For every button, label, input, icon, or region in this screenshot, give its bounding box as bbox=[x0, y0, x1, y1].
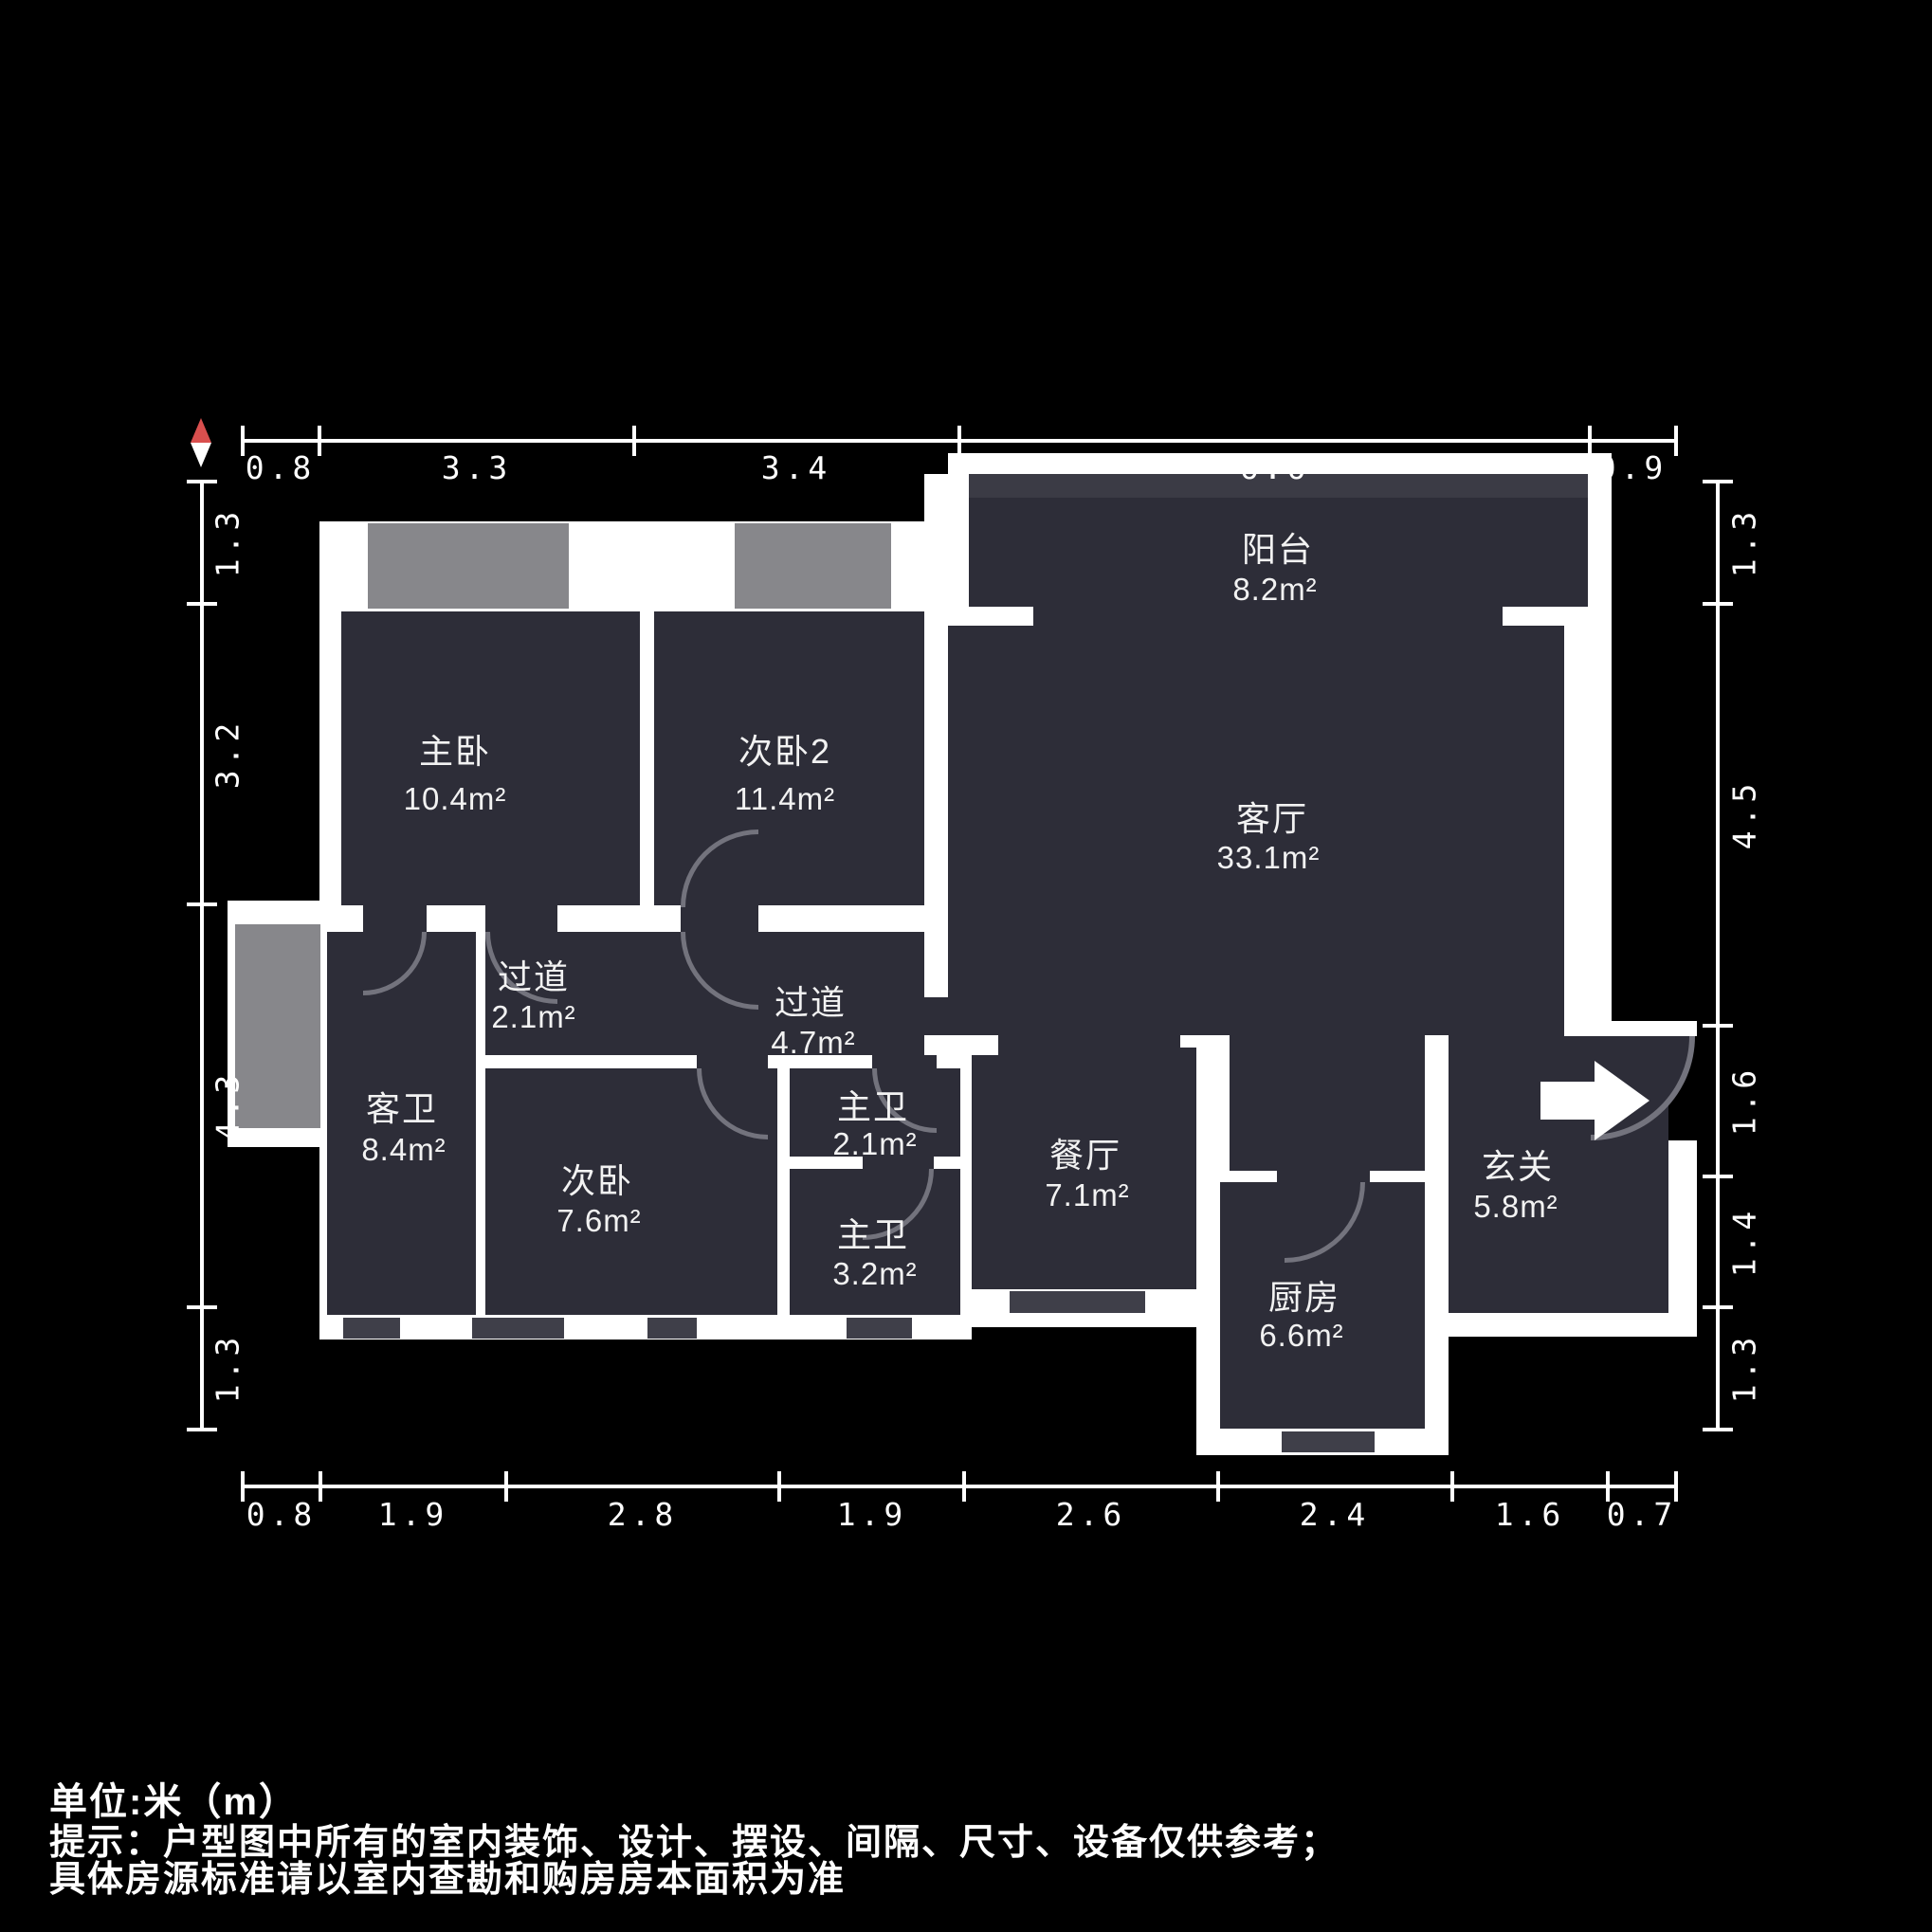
ruler-tick bbox=[962, 1471, 966, 1502]
ruler-tick bbox=[318, 426, 321, 456]
room-area-label: 33.1m² bbox=[1217, 840, 1321, 876]
room-label: 过道 bbox=[498, 950, 570, 999]
ruler-label: 1.3 bbox=[210, 1333, 246, 1404]
footer-disclaimer-line2: 具体房源标准请以室内查勘和购房房本面积为准 bbox=[49, 1850, 846, 1902]
ruler-tick bbox=[1674, 426, 1678, 456]
ruler-tick bbox=[1588, 426, 1592, 456]
ruler-label: 2.4 bbox=[1300, 1496, 1371, 1533]
ruler-tick bbox=[187, 602, 217, 606]
room-label: 厨房 bbox=[1268, 1270, 1340, 1320]
room-area-label: 11.4m² bbox=[735, 781, 835, 817]
window bbox=[235, 924, 320, 1128]
room-area-label: 8.4m² bbox=[361, 1132, 446, 1168]
wall bbox=[924, 905, 948, 997]
ruler-tick bbox=[319, 1471, 322, 1502]
ruler-tick bbox=[241, 426, 245, 456]
room-area-label: 7.6m² bbox=[556, 1203, 641, 1239]
ruler-tick bbox=[187, 1305, 217, 1309]
ruler-tick bbox=[187, 1428, 217, 1431]
ruler-tick bbox=[187, 480, 217, 483]
ruler-line bbox=[1716, 482, 1720, 1430]
ruler-line bbox=[243, 1485, 1676, 1488]
room-label: 次卧 bbox=[561, 1154, 633, 1203]
window-sill bbox=[847, 1318, 912, 1339]
ruler-line bbox=[200, 482, 204, 1430]
ruler-label: 3.3 bbox=[442, 449, 513, 486]
room-area-label: 4.7m² bbox=[771, 1025, 855, 1061]
ruler-tick bbox=[632, 426, 636, 456]
ruler-label: 1.3 bbox=[210, 507, 246, 578]
ruler-tick bbox=[187, 902, 217, 906]
ruler-label: 0.8 bbox=[246, 449, 317, 486]
ruler-tick bbox=[1703, 1305, 1733, 1309]
room-area-label: 8.2m² bbox=[1232, 572, 1317, 608]
window bbox=[368, 523, 569, 609]
room-area-label: 5.8m² bbox=[1473, 1189, 1558, 1225]
ruler-tick bbox=[1703, 480, 1733, 483]
ruler-tick bbox=[1450, 1471, 1454, 1502]
ruler-tick bbox=[1216, 1471, 1220, 1502]
ruler-label: 3.4 bbox=[761, 449, 832, 486]
ruler-tick bbox=[1703, 602, 1733, 606]
ruler-label: 2.6 bbox=[1056, 1496, 1127, 1533]
ruler-tick bbox=[241, 1471, 245, 1502]
ruler-label: 0.7 bbox=[1607, 1496, 1678, 1533]
room-area-label: 3.2m² bbox=[832, 1256, 917, 1292]
room-label: 主卫 bbox=[837, 1080, 909, 1129]
room-area-label: 2.1m² bbox=[491, 999, 575, 1035]
room-area-label: 6.6m² bbox=[1259, 1318, 1343, 1354]
ruler-tick bbox=[1703, 1428, 1733, 1431]
room-area-label: 2.1m² bbox=[832, 1126, 917, 1162]
door-opening bbox=[872, 1055, 937, 1068]
window-sill bbox=[1010, 1291, 1145, 1313]
window-sill bbox=[472, 1318, 564, 1339]
window-sill bbox=[647, 1318, 697, 1339]
ruler-label: 1.9 bbox=[378, 1496, 449, 1533]
ruler-label: 0.9 bbox=[1597, 449, 1668, 486]
ruler-label: 1.6 bbox=[1495, 1496, 1566, 1533]
window-sill bbox=[1282, 1431, 1375, 1452]
wall bbox=[924, 1035, 998, 1055]
room-kitchen-passage bbox=[1230, 1035, 1425, 1171]
wall bbox=[1180, 1035, 1220, 1048]
ruler-label: 1.3 bbox=[1726, 507, 1763, 578]
wall bbox=[969, 607, 1033, 626]
wall bbox=[1564, 1021, 1697, 1036]
ruler-label: 4.5 bbox=[1726, 779, 1763, 850]
ruler-label: 1.3 bbox=[1726, 1333, 1763, 1404]
room-label: 客卫 bbox=[366, 1082, 438, 1131]
ruler-tick bbox=[777, 1471, 781, 1502]
door-opening bbox=[1277, 1171, 1370, 1182]
room-label: 主卧 bbox=[419, 724, 491, 774]
room-area-label: 7.1m² bbox=[1045, 1177, 1129, 1213]
ruler-label: 2.8 bbox=[608, 1496, 679, 1533]
ruler-label: 6.6 bbox=[1240, 449, 1311, 486]
ruler-label: 1.4 bbox=[1726, 1207, 1763, 1278]
door-opening bbox=[998, 1035, 1180, 1046]
ruler-tick bbox=[504, 1471, 508, 1502]
room-label: 阳台 bbox=[1242, 522, 1314, 572]
room-label: 过道 bbox=[775, 975, 847, 1025]
door-opening bbox=[681, 905, 758, 932]
door-opening bbox=[485, 905, 557, 932]
room-label: 主卫 bbox=[837, 1208, 909, 1257]
room-label: 客厅 bbox=[1236, 792, 1308, 841]
room-area-label: 10.4m² bbox=[404, 781, 507, 817]
ruler-label: 1.6 bbox=[1726, 1066, 1763, 1137]
ruler-label: 0.8 bbox=[246, 1496, 318, 1533]
door-opening bbox=[363, 905, 427, 932]
ruler-tick bbox=[1703, 1175, 1733, 1178]
room-label: 玄关 bbox=[1482, 1139, 1554, 1189]
ruler-tick bbox=[957, 426, 961, 456]
ruler-tick bbox=[1703, 1024, 1733, 1028]
ruler-label: 1.9 bbox=[837, 1496, 908, 1533]
ruler-label: 4.3 bbox=[210, 1070, 246, 1141]
room-label: 餐厅 bbox=[1049, 1128, 1121, 1177]
ruler-label: 3.2 bbox=[210, 719, 246, 790]
floor-plan: 阳台 8.2m² 主卧 10.4m² 次卧2 11.4m² 客厅 33.1m² … bbox=[0, 0, 1932, 1932]
door-opening bbox=[697, 1055, 768, 1068]
wall bbox=[1503, 607, 1588, 626]
window bbox=[735, 523, 891, 609]
room-label: 次卧2 bbox=[738, 724, 831, 774]
window-sill bbox=[343, 1318, 400, 1339]
